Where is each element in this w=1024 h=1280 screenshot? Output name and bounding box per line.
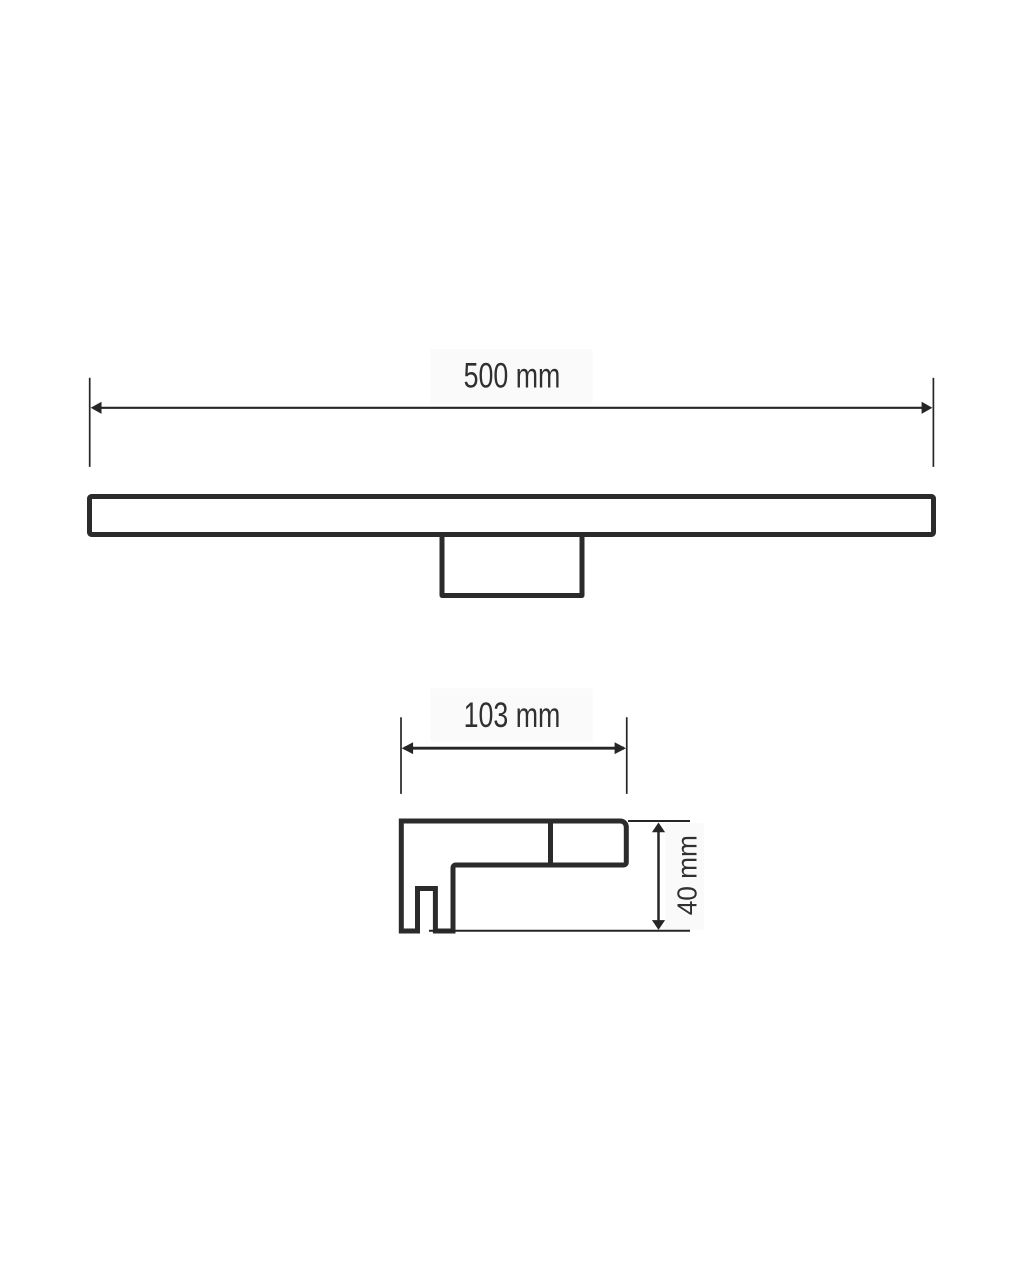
svg-text:40 mm: 40 mm [672,835,703,915]
svg-text:500 mm: 500 mm [464,356,561,395]
svg-text:103 mm: 103 mm [464,696,561,735]
